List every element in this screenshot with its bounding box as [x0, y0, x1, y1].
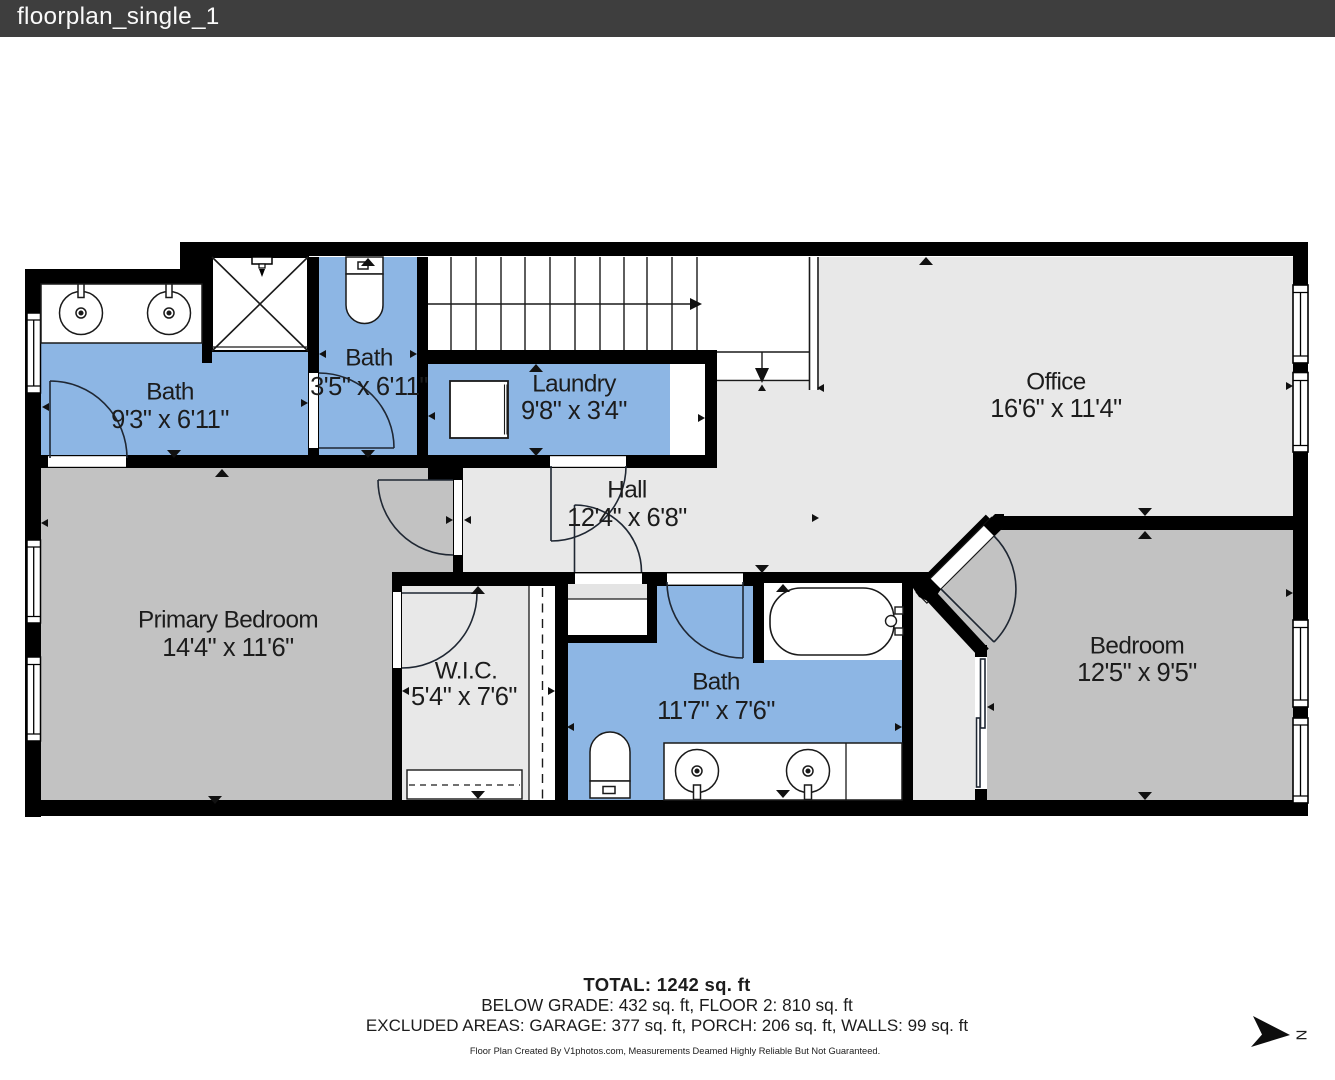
svg-text:TOTAL: 1242 sq. ft: TOTAL: 1242 sq. ft [583, 974, 750, 995]
svg-text:Bath: Bath [692, 669, 740, 696]
svg-text:3'5" x 6'11": 3'5" x 6'11" [310, 373, 428, 401]
svg-text:Bath: Bath [146, 379, 194, 406]
svg-text:Bath: Bath [345, 345, 393, 372]
svg-text:12'4" x 6'8": 12'4" x 6'8" [567, 504, 687, 532]
svg-text:14'4" x 11'6": 14'4" x 11'6" [162, 634, 293, 662]
svg-text:11'7" x 7'6": 11'7" x 7'6" [657, 697, 775, 725]
svg-text:12'5" x 9'5": 12'5" x 9'5" [1077, 659, 1197, 687]
svg-text:Bedroom: Bedroom [1090, 633, 1184, 660]
svg-text:Hall: Hall [607, 477, 646, 504]
svg-text:16'6" x 11'4": 16'6" x 11'4" [990, 395, 1121, 423]
svg-text:Laundry: Laundry [532, 371, 617, 398]
svg-text:N: N [1293, 1030, 1310, 1041]
svg-text:floorplan_single_1: floorplan_single_1 [17, 3, 220, 30]
svg-text:5'4" x 7'6": 5'4" x 7'6" [411, 683, 517, 711]
svg-text:9'8" x 3'4": 9'8" x 3'4" [521, 397, 627, 425]
svg-text:9'3" x 6'11": 9'3" x 6'11" [111, 406, 229, 434]
svg-text:Office: Office [1026, 369, 1086, 396]
svg-text:EXCLUDED AREAS: GARAGE: 377 sq: EXCLUDED AREAS: GARAGE: 377 sq. ft, PORC… [366, 1016, 968, 1035]
svg-text:W.I.C.: W.I.C. [435, 658, 498, 685]
svg-text:Floor Plan Created By V1photos: Floor Plan Created By V1photos.com, Meas… [470, 1046, 880, 1056]
svg-text:BELOW GRADE: 432 sq. ft, FLOOR: BELOW GRADE: 432 sq. ft, FLOOR 2: 810 sq… [481, 995, 853, 1015]
svg-text:Primary Bedroom: Primary Bedroom [138, 607, 318, 634]
